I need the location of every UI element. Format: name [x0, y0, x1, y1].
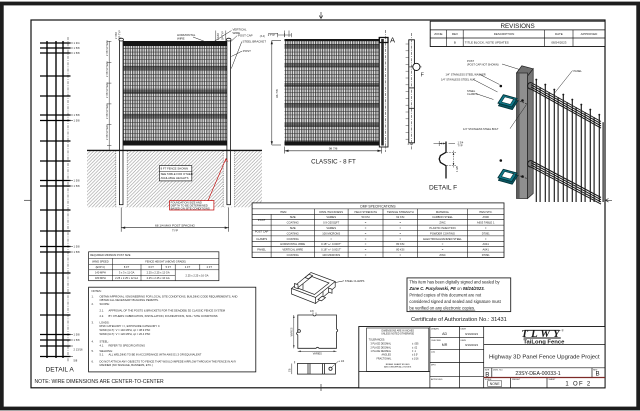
svg-text:1 3/4: 1 3/4 [74, 41, 80, 45]
svg-text:TITLE BLOCK, NOTE UPDATES: TITLE BLOCK, NOTE UPDATES [465, 41, 509, 45]
svg-text:CLAMPS: CLAMPS [256, 237, 267, 241]
svg-text:DWG. NO.: DWG. NO. [493, 369, 503, 371]
svg-text:DRAWN: DRAWN [431, 328, 439, 331]
svg-text:1 3/8: 1 3/8 [455, 166, 459, 172]
svg-text:1 5/8: 1 5/8 [74, 51, 80, 55]
svg-text:SIZE: SIZE [290, 215, 296, 219]
svg-text:REV: REV [452, 32, 458, 36]
svg-text:4 FT: 4 FT [185, 265, 191, 269]
svg-text:POST CAP: POST CAP [255, 229, 269, 233]
svg-text:1 5/8: 1 5/8 [74, 113, 80, 117]
svg-text:2.25 x 2.25 x 16 GA: 2.25 x 2.25 x 16 GA [186, 273, 209, 277]
svg-text:B: B [454, 41, 456, 45]
svg-text:DETAIL F: DETAIL F [429, 185, 457, 192]
svg-text:WIND (ULT): V = 120 MPH, qz =: WIND (ULT): V = 120 MPH, qz = 26.4 PSF [100, 332, 151, 336]
svg-text:BREAK SHARP EDGES: BREAK SHARP EDGES [386, 363, 410, 366]
svg-text:0.18" +/- 0.0007": 0.18" +/- 0.0007" [321, 242, 341, 246]
svg-text:POST: POST [243, 49, 251, 53]
svg-text:2 7/8 SP MAX: 2 7/8 SP MAX [106, 40, 109, 56]
svg-text:SP TYP: SP TYP [119, 30, 122, 39]
svg-text:5.1.: 5.1. [100, 353, 105, 357]
svg-text:⌀ 1/4: ⌀ 1/4 [339, 360, 345, 363]
svg-text:CHECKED: CHECKED [431, 340, 442, 342]
svg-text:WIRE: WIRE [177, 37, 185, 41]
svg-text:2.25 x 2.25 x 16 GA: 2.25 x 2.25 x 16 GA [147, 276, 170, 280]
svg-text:DIMENSIONS ARE IN INCHES: DIMENSIONS ARE IN INCHES [381, 329, 414, 332]
svg-text:MR: MR [442, 343, 448, 347]
svg-text:BASED ON SITE CONDITIONS: BASED ON SITE CONDITIONS [171, 207, 210, 211]
svg-text:1 5/8: 1 5/8 [74, 46, 80, 50]
svg-text:TYP: TYP [172, 228, 178, 232]
svg-text:STEEL BRACKET: STEEL BRACKET [243, 40, 267, 44]
svg-text:2 7/8 SP MAX: 2 7/8 SP MAX [106, 103, 109, 119]
svg-text:WIND (ULT): V = 140 MPH, qz =: WIND (ULT): V = 140 MPH, qz = 38.9 PSF [100, 328, 151, 332]
svg-text:2 13/16: 2 13/16 [74, 348, 83, 352]
svg-text:MANNER (NO SIGNAGE, BANNERS, E: MANNER (NO SIGNAGE, BANNERS, ETC.) [100, 363, 153, 367]
svg-text:80 KSI: 80 KSI [396, 242, 404, 246]
svg-text:STEEL:: STEEL: [100, 340, 110, 344]
svg-text:80 KSI: 80 KSI [396, 248, 404, 252]
svg-text:2 TYP: 2 TYP [268, 33, 275, 37]
svg-text:OBTAIN ALL NECESSARY BUILDING: OBTAIN ALL NECESSARY BUILDING PERMITS. [100, 298, 159, 302]
svg-text:1.: 1. [92, 295, 94, 299]
svg-text:COATING: COATING [287, 221, 299, 225]
svg-text:Zane C. Pucylowski, PE on 08/2: Zane C. Pucylowski, PE on 08/24/2023. [408, 286, 484, 291]
svg-text:(EXP C): (EXP C) [96, 265, 106, 269]
svg-text:5.: 5. [92, 349, 94, 353]
svg-text:9/19/2023: 9/19/2023 [465, 343, 478, 347]
svg-text:RISK CATEGORY = I, EXPOSURE CA: RISK CATEGORY = I, EXPOSURE CATEGORY C [100, 324, 160, 328]
svg-text:TOLERANCES:: TOLERANCES: [369, 339, 386, 342]
svg-text:AD: AD [442, 332, 447, 336]
svg-text:2 FT: 2 FT [207, 265, 213, 269]
svg-text:3 PLACE DECIMAL: 3 PLACE DECIMAL [371, 343, 392, 346]
svg-text:68 1/4 MAX POST SPACING: 68 1/4 MAX POST SPACING [155, 223, 196, 227]
svg-text:CLAMPS: CLAMPS [467, 92, 478, 96]
svg-text:COATING: COATING [287, 231, 299, 235]
svg-text:4 3/8: 4 3/8 [408, 143, 414, 146]
svg-text:100 MICRONS: 100 MICRONS [322, 253, 340, 257]
svg-text:COATING: COATING [287, 253, 299, 257]
svg-text:DETAIL A: DETAIL A [46, 367, 75, 374]
svg-text:POST CAP: POST CAP [238, 34, 253, 38]
svg-text:6 FT: 6 FT [149, 265, 155, 269]
svg-text:1 5/8: 1 5/8 [74, 184, 80, 188]
svg-text:NONE: NONE [490, 382, 501, 386]
svg-text:CLASSIC - 8 FT: CLASSIC - 8 FT [311, 159, 356, 166]
svg-text:MATERIAL: MATERIAL [436, 210, 450, 214]
svg-text:23SY-DEA-00033-1: 23SY-DEA-00033-1 [515, 371, 560, 377]
svg-text:ANGLES: ANGLES [382, 354, 392, 357]
svg-text:180 MPH: 180 MPH [95, 276, 106, 280]
svg-text:DATE: DATE [461, 328, 467, 331]
svg-text:08/24/2023: 08/24/2023 [551, 41, 566, 45]
svg-text:1 5/8: 1 5/8 [74, 179, 80, 183]
svg-text:0.9 OZ/SQFT: 0.9 OZ/SQFT [323, 221, 339, 225]
svg-text:POST: POST [258, 218, 266, 222]
svg-text:STEEL CLAMPS: STEEL CLAMPS [345, 279, 365, 283]
svg-text:PANEL: PANEL [574, 69, 583, 73]
svg-text:WELDING:: WELDING: [100, 349, 114, 353]
svg-text:A641: A641 [483, 242, 490, 246]
svg-text:DIMS./THICKNESS: DIMS./THICKNESS [319, 210, 343, 214]
svg-text:YIELD STRENGTH: YIELD STRENGTH [354, 210, 377, 214]
svg-text:ITEM: ITEM [280, 210, 287, 214]
svg-text:ZINC: ZINC [439, 253, 445, 257]
svg-text:MFG: MFG [431, 365, 436, 367]
svg-text:1 5/8: 1 5/8 [74, 338, 80, 342]
svg-text:A641: A641 [483, 248, 490, 252]
svg-text:ALL WELDING TO BE IN ACCORDANC: ALL WELDING TO BE IN ACCORDANCE WITH AWS… [109, 353, 202, 357]
svg-text:AVAILABLE HEIGHTS: AVAILABLE HEIGHTS [161, 176, 189, 180]
svg-text:UNLESS NOTED OTHERWISE: UNLESS NOTED OTHERWISE [381, 333, 414, 335]
svg-text:HORIZONTAL WIRE: HORIZONTAL WIRE [280, 242, 305, 246]
svg-text:DATE: DATE [461, 339, 467, 342]
svg-text:VARIES: VARIES [313, 353, 322, 356]
svg-text:D7091: D7091 [482, 253, 490, 257]
svg-text:REQUIRED MINIMUM POST SIZE: REQUIRED MINIMUM POST SIZE [90, 253, 131, 257]
svg-text:WIND SPEED: WIND SPEED [92, 259, 109, 263]
svg-text:4.1.: 4.1. [100, 344, 105, 348]
svg-text:140 MPH: 140 MPH [95, 271, 106, 275]
svg-text:(3-4): (3-4) [260, 35, 265, 38]
svg-text:PLASTIC INJECTION: PLASTIC INJECTION [429, 226, 455, 230]
svg-text:3 x 3 x 11 GA: 3 x 3 x 11 GA [119, 271, 135, 275]
svg-text:± .02: ± .02 [412, 347, 418, 349]
svg-text:DMF SPECIFICATIONS: DMF SPECIFICATIONS [360, 204, 396, 208]
svg-text:100 MICRONS: 100 MICRONS [322, 231, 340, 235]
svg-text:TYP: TYP [458, 143, 463, 147]
svg-text:VERTICAL WIRE: VERTICAL WIRE [282, 248, 303, 252]
svg-text:62 KSI: 62 KSI [396, 215, 404, 219]
svg-text:2.25 x 2.25 x 12 GA: 2.25 x 2.25 x 12 GA [147, 271, 170, 275]
svg-text:98 7/8: 98 7/8 [329, 147, 338, 151]
svg-text:B: B [596, 371, 600, 378]
svg-text:CARBON STEEL: CARBON STEEL [432, 215, 453, 219]
svg-text:PANEL: PANEL [257, 248, 266, 252]
svg-text:50 KSI: 50 KSI [361, 215, 369, 219]
svg-text:8 FT FENCE SHOWN: 8 FT FENCE SHOWN [161, 166, 188, 170]
svg-text:ITEM STD.: ITEM STD. [479, 210, 493, 214]
svg-text:6.: 6. [92, 359, 94, 363]
svg-text:This item has been digitally s: This item has been digitally signed and … [409, 280, 500, 285]
svg-text:NOTES:: NOTES: [92, 289, 102, 293]
svg-text:NOTE: WIRE DIMENSIONS ARE CENT: NOTE: WIRE DIMENSIONS ARE CENTER-TO-CENT… [35, 379, 165, 385]
svg-text:Q.A.: Q.A. [431, 350, 436, 353]
svg-text:1 PLACE DECIMAL: 1 PLACE DECIMAL [371, 350, 392, 353]
svg-text:2 7/8 SP MAX: 2 7/8 SP MAX [106, 124, 109, 140]
svg-text:considered signed and sealed a: considered signed and sealed and signatu… [409, 299, 501, 304]
svg-text:DESCRIPTION: DESCRIPTION [494, 32, 515, 36]
svg-text:LOADS:: LOADS: [100, 320, 110, 324]
svg-text:(POST CAP NOT SHOWN): (POST CAP NOT SHOWN) [467, 62, 499, 66]
svg-text:1 5/8: 1 5/8 [74, 333, 80, 337]
svg-text:VARIES: VARIES [326, 215, 336, 219]
svg-text:1 5/8: 1 5/8 [74, 119, 80, 123]
svg-text:2 PLACE DECIMAL: 2 PLACE DECIMAL [371, 346, 392, 349]
svg-text:FRACTIONAL: FRACTIONAL [377, 357, 392, 360]
svg-text:be verified on any electronic: be verified on any electronic copies. [409, 306, 475, 311]
svg-text:9/19/2023: 9/19/2023 [465, 332, 478, 336]
svg-text:ZONE: ZONE [434, 32, 442, 36]
svg-text:ZINC: ZINC [439, 221, 445, 225]
svg-text:1/4" STAINLESS STEEL NUT: 1/4" STAINLESS STEEL NUT [441, 77, 476, 81]
svg-text:TENSILE STRENGTH: TENSILE STRENGTH [387, 210, 414, 214]
svg-text:1 5/8: 1 5/8 [74, 250, 80, 254]
svg-text:1 OF 2: 1 OF 2 [565, 381, 591, 387]
svg-text:APPROVAL OF THE POSTS & BRACKE: APPROVAL OF THE POSTS & BRACKETS FOR THE… [109, 309, 226, 313]
svg-text:2.1.: 2.1. [100, 309, 105, 313]
svg-text:AND DEBURR ALL EDGES: AND DEBURR ALL EDGES [384, 366, 412, 369]
svg-text:DATE: DATE [555, 32, 563, 36]
svg-text:VARIES: VARIES [326, 226, 336, 230]
svg-text:1/4" STAINLESS STEEL BOLT: 1/4" STAINLESS STEEL BOLT [463, 127, 499, 131]
svg-text:Highway 3D Panel Fence Upgrade: Highway 3D Panel Fence Upgrade Project [489, 355, 600, 361]
svg-text:D7091: D7091 [482, 231, 490, 235]
svg-text:WEIGHT: WEIGHT [512, 379, 521, 381]
svg-text:SHEET: SHEET [549, 379, 557, 381]
svg-text:1 5/8: 1 5/8 [74, 245, 80, 249]
svg-text:FENCE HEIGHT (ABOVE GRADE): FENCE HEIGHT (ABOVE GRADE) [145, 259, 186, 263]
svg-text:A653 TABLE 1: A653 TABLE 1 [477, 221, 495, 225]
svg-text:1/8: 1/8 [310, 310, 314, 313]
svg-text:2 7/8 SP MAX: 2 7/8 SP MAX [106, 82, 109, 98]
svg-text:REFER TO SPECIFICATIONS: REFER TO SPECIFICATIONS [109, 344, 146, 348]
svg-text:± 1/16: ± 1/16 [412, 358, 419, 360]
svg-text:0.18" +/- 0.0017": 0.18" +/- 0.0017" [321, 248, 341, 252]
svg-text:± 0.5°: ± 0.5° [412, 355, 418, 357]
svg-text:96 7/8: 96 7/8 [275, 89, 279, 98]
svg-text:2.: 2. [92, 302, 94, 306]
svg-text:ELECTROGALVANIZED STEEL: ELECTROGALVANIZED STEEL [423, 237, 462, 241]
svg-text:A500: A500 [483, 215, 490, 219]
svg-text:APPROVED: APPROVED [431, 378, 443, 381]
svg-text:VARIES: VARIES [291, 327, 294, 336]
svg-text:COATING: COATING [287, 237, 299, 241]
svg-text:TaiLong Fence: TaiLong Fence [523, 340, 565, 346]
svg-text:REVISIONS: REVISIONS [500, 23, 534, 30]
svg-text:8 FT: 8 FT [124, 265, 130, 269]
svg-text:4.: 4. [92, 340, 94, 344]
svg-text:Certificate of Authorization N: Certificate of Authorization No.: 31431 [411, 317, 507, 323]
svg-text:2.25 x 2.25 x 12 GA: 2.25 x 2.25 x 12 GA [115, 276, 138, 280]
svg-text:BY OTHERS: FABRICATION, INSTAL: BY OTHERS: FABRICATION, INSTALLATION, FO… [109, 314, 218, 318]
svg-text:Printed copies of this documen: Printed copies of this document are not [409, 293, 482, 298]
svg-text:POWDER COATING: POWDER COATING [430, 231, 455, 235]
svg-text:SCOPE:: SCOPE: [100, 302, 110, 306]
svg-text:APPROVED: APPROVED [581, 32, 599, 36]
svg-text:SIZE: SIZE [290, 226, 296, 230]
svg-text:5 FT: 5 FT [166, 265, 172, 269]
svg-text:2.2.: 2.2. [100, 314, 105, 318]
svg-text:± .005: ± .005 [412, 344, 419, 346]
svg-text:DO NOT ATTACH ANY OBJECTS TO F: DO NOT ATTACH ANY OBJECTS TO FENCE THAT … [100, 359, 237, 363]
svg-text:2 7/8 SP MAX: 2 7/8 SP MAX [106, 61, 109, 77]
svg-text:3.: 3. [92, 320, 94, 324]
svg-text:5/8: 5/8 [74, 359, 78, 363]
